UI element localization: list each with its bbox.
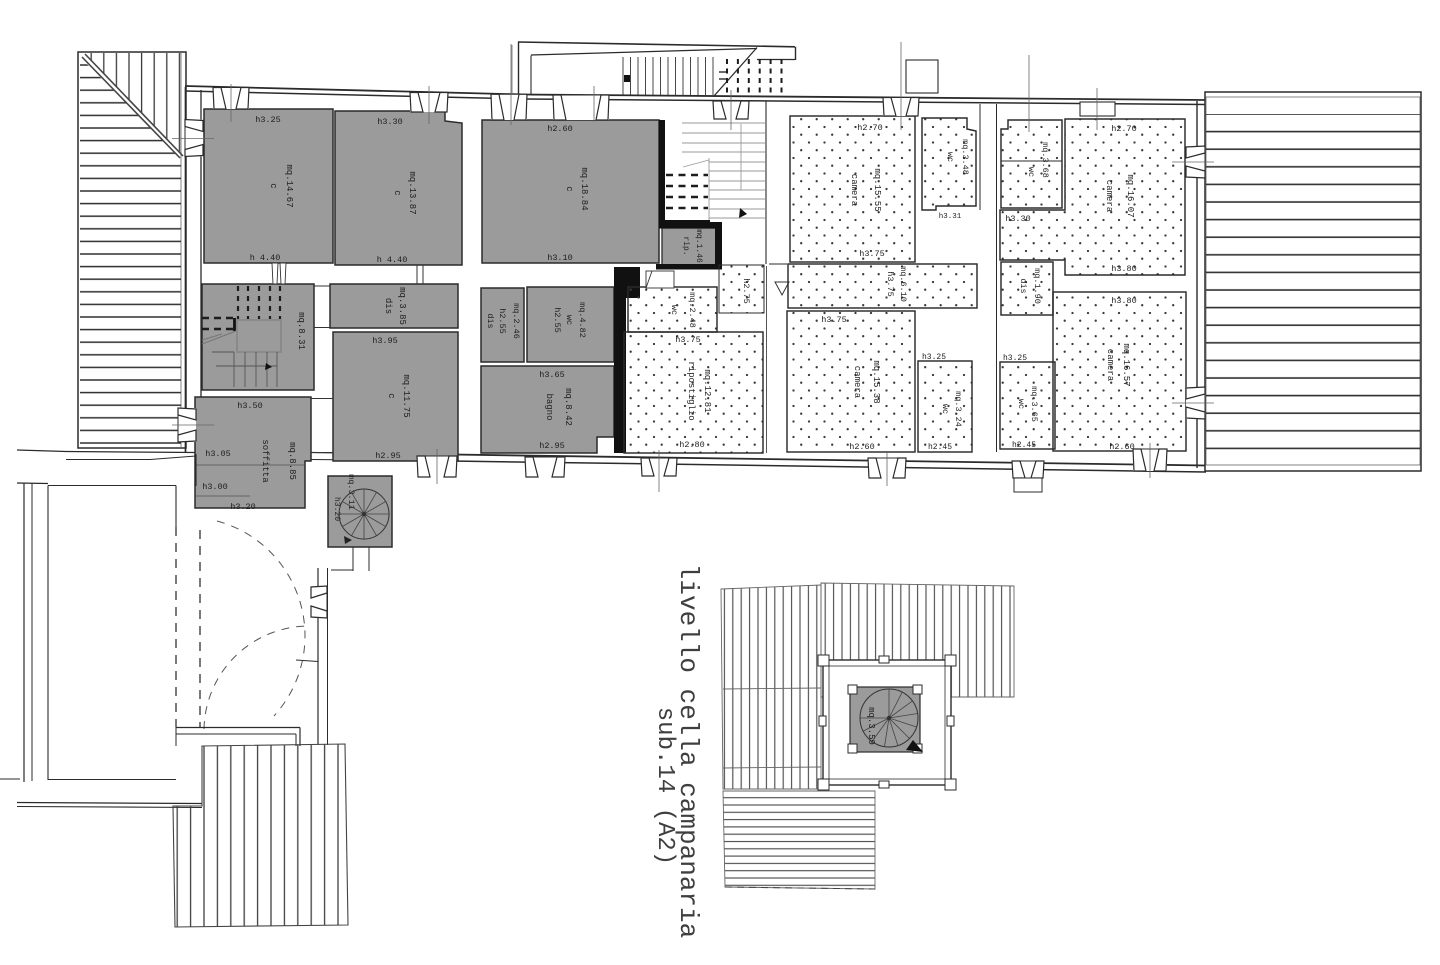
svg-text:h3.75: h3.75	[859, 249, 885, 259]
svg-text:h3.00: h3.00	[202, 482, 228, 492]
svg-text:h2.45: h2.45	[1012, 441, 1036, 450]
svg-text:mq.15.38: mq.15.38	[871, 360, 881, 403]
svg-text:c: c	[386, 393, 396, 398]
svg-text:h 4.40: h 4.40	[377, 255, 408, 265]
svg-text:mq.18.84: mq.18.84	[579, 167, 589, 210]
svg-text:mq.2.46: mq.2.46	[511, 303, 521, 339]
svg-text:mq.3.65: mq.3.65	[1029, 386, 1039, 422]
svg-text:mq.8.31: mq.8.31	[296, 312, 306, 350]
svg-text:dis: dis	[485, 313, 495, 328]
svg-text:dis: dis	[383, 298, 393, 314]
svg-text:h2.70: h2.70	[1111, 124, 1137, 134]
svg-text:camera: camera	[849, 174, 859, 207]
svg-text:h3.25: h3.25	[1003, 354, 1027, 363]
svg-text:mq.4.82: mq.4.82	[577, 302, 587, 338]
svg-text:rip.: rip.	[681, 236, 690, 255]
svg-text:h2.95: h2.95	[375, 451, 401, 461]
svg-text:h2.60: h2.60	[1109, 442, 1135, 452]
svg-text:h3.95: h3.95	[372, 336, 398, 346]
svg-text:mq.12.81: mq.12.81	[702, 369, 712, 412]
svg-text:wc: wc	[669, 305, 679, 315]
svg-text:dis: dis	[1018, 278, 1028, 293]
svg-text:mq.11.75: mq.11.75	[401, 374, 411, 417]
svg-text:wc: wc	[940, 404, 950, 414]
svg-text:h3.50: h3.50	[237, 401, 263, 411]
svg-text:ripostiglio: ripostiglio	[686, 361, 696, 420]
svg-text:h2.80: h2.80	[679, 440, 705, 450]
svg-text:mq.8.85: mq.8.85	[287, 442, 297, 480]
svg-text:mq.13.87: mq.13.87	[407, 171, 417, 214]
svg-text:mq.14.67: mq.14.67	[284, 164, 294, 207]
svg-text:h3.05: h3.05	[205, 449, 231, 459]
svg-text:mq.1.46: mq.1.46	[694, 229, 703, 263]
svg-text:h2.45: h2.45	[928, 443, 952, 452]
svg-text:h3.30: h3.30	[377, 117, 403, 127]
svg-text:h2.70: h2.70	[857, 123, 883, 133]
svg-text:h 4.40: h 4.40	[250, 253, 281, 263]
svg-text:wc: wc	[945, 152, 955, 162]
svg-text:h3.80: h3.80	[1111, 264, 1137, 274]
svg-text:wc: wc	[564, 315, 574, 325]
svg-text:camera: camera	[1105, 349, 1115, 382]
svg-text:mq.15.55: mq.15.55	[872, 168, 882, 211]
svg-text:h2.95: h2.95	[539, 441, 565, 451]
svg-text:mq.16.07: mq.16.07	[1125, 174, 1135, 217]
svg-text:h3.75: h3.75	[885, 271, 895, 297]
svg-text:c: c	[268, 183, 278, 188]
svg-text:mq.8.42: mq.8.42	[563, 388, 573, 426]
svg-text:mq.3.24: mq.3.24	[953, 391, 963, 427]
svg-text:c: c	[564, 186, 574, 191]
svg-text:wc: wc	[1016, 399, 1026, 409]
svg-text:h3.65: h3.65	[539, 370, 565, 380]
svg-text:soffitta: soffitta	[260, 439, 270, 483]
svg-text:camera: camera	[1104, 180, 1114, 213]
svg-text:h3.25: h3.25	[922, 353, 946, 362]
svg-text:mq.16.57: mq.16.57	[1121, 343, 1131, 386]
svg-text:mq.3.59: mq.3.59	[866, 707, 876, 745]
svg-text:mq.3.68: mq.3.68	[1040, 142, 1050, 178]
svg-text:h2.55: h2.55	[497, 308, 507, 334]
svg-text:sub.14 (A2): sub.14 (A2)	[651, 707, 678, 865]
svg-text:mq.3.48: mq.3.48	[960, 139, 970, 175]
svg-text:camera: camera	[852, 366, 862, 399]
svg-text:h3.75: h3.75	[821, 315, 847, 325]
svg-text:h3.10: h3.10	[547, 253, 573, 263]
svg-text:mq.1.90: mq.1.90	[1032, 268, 1042, 304]
svg-text:h2.60: h2.60	[849, 442, 875, 452]
svg-text:h3.75: h3.75	[675, 335, 701, 345]
svg-text:mq.3.85: mq.3.85	[397, 287, 407, 325]
svg-text:mq.2.48: mq.2.48	[687, 292, 697, 328]
svg-text:h3.80: h3.80	[1111, 296, 1137, 306]
svg-text:h3.20: h3.20	[230, 502, 256, 512]
svg-text:c: c	[392, 190, 402, 195]
svg-text:h2.75: h2.75	[741, 278, 751, 304]
svg-text:h3.31: h3.31	[939, 213, 962, 221]
svg-text:wc: wc	[1026, 167, 1036, 177]
svg-text:h2.55: h2.55	[552, 307, 562, 333]
svg-text:h2.60: h2.60	[547, 124, 573, 134]
svg-text:bagno: bagno	[544, 393, 554, 420]
svg-text:mq.6.10: mq.6.10	[898, 266, 908, 302]
svg-text:h3.25: h3.25	[255, 115, 281, 125]
